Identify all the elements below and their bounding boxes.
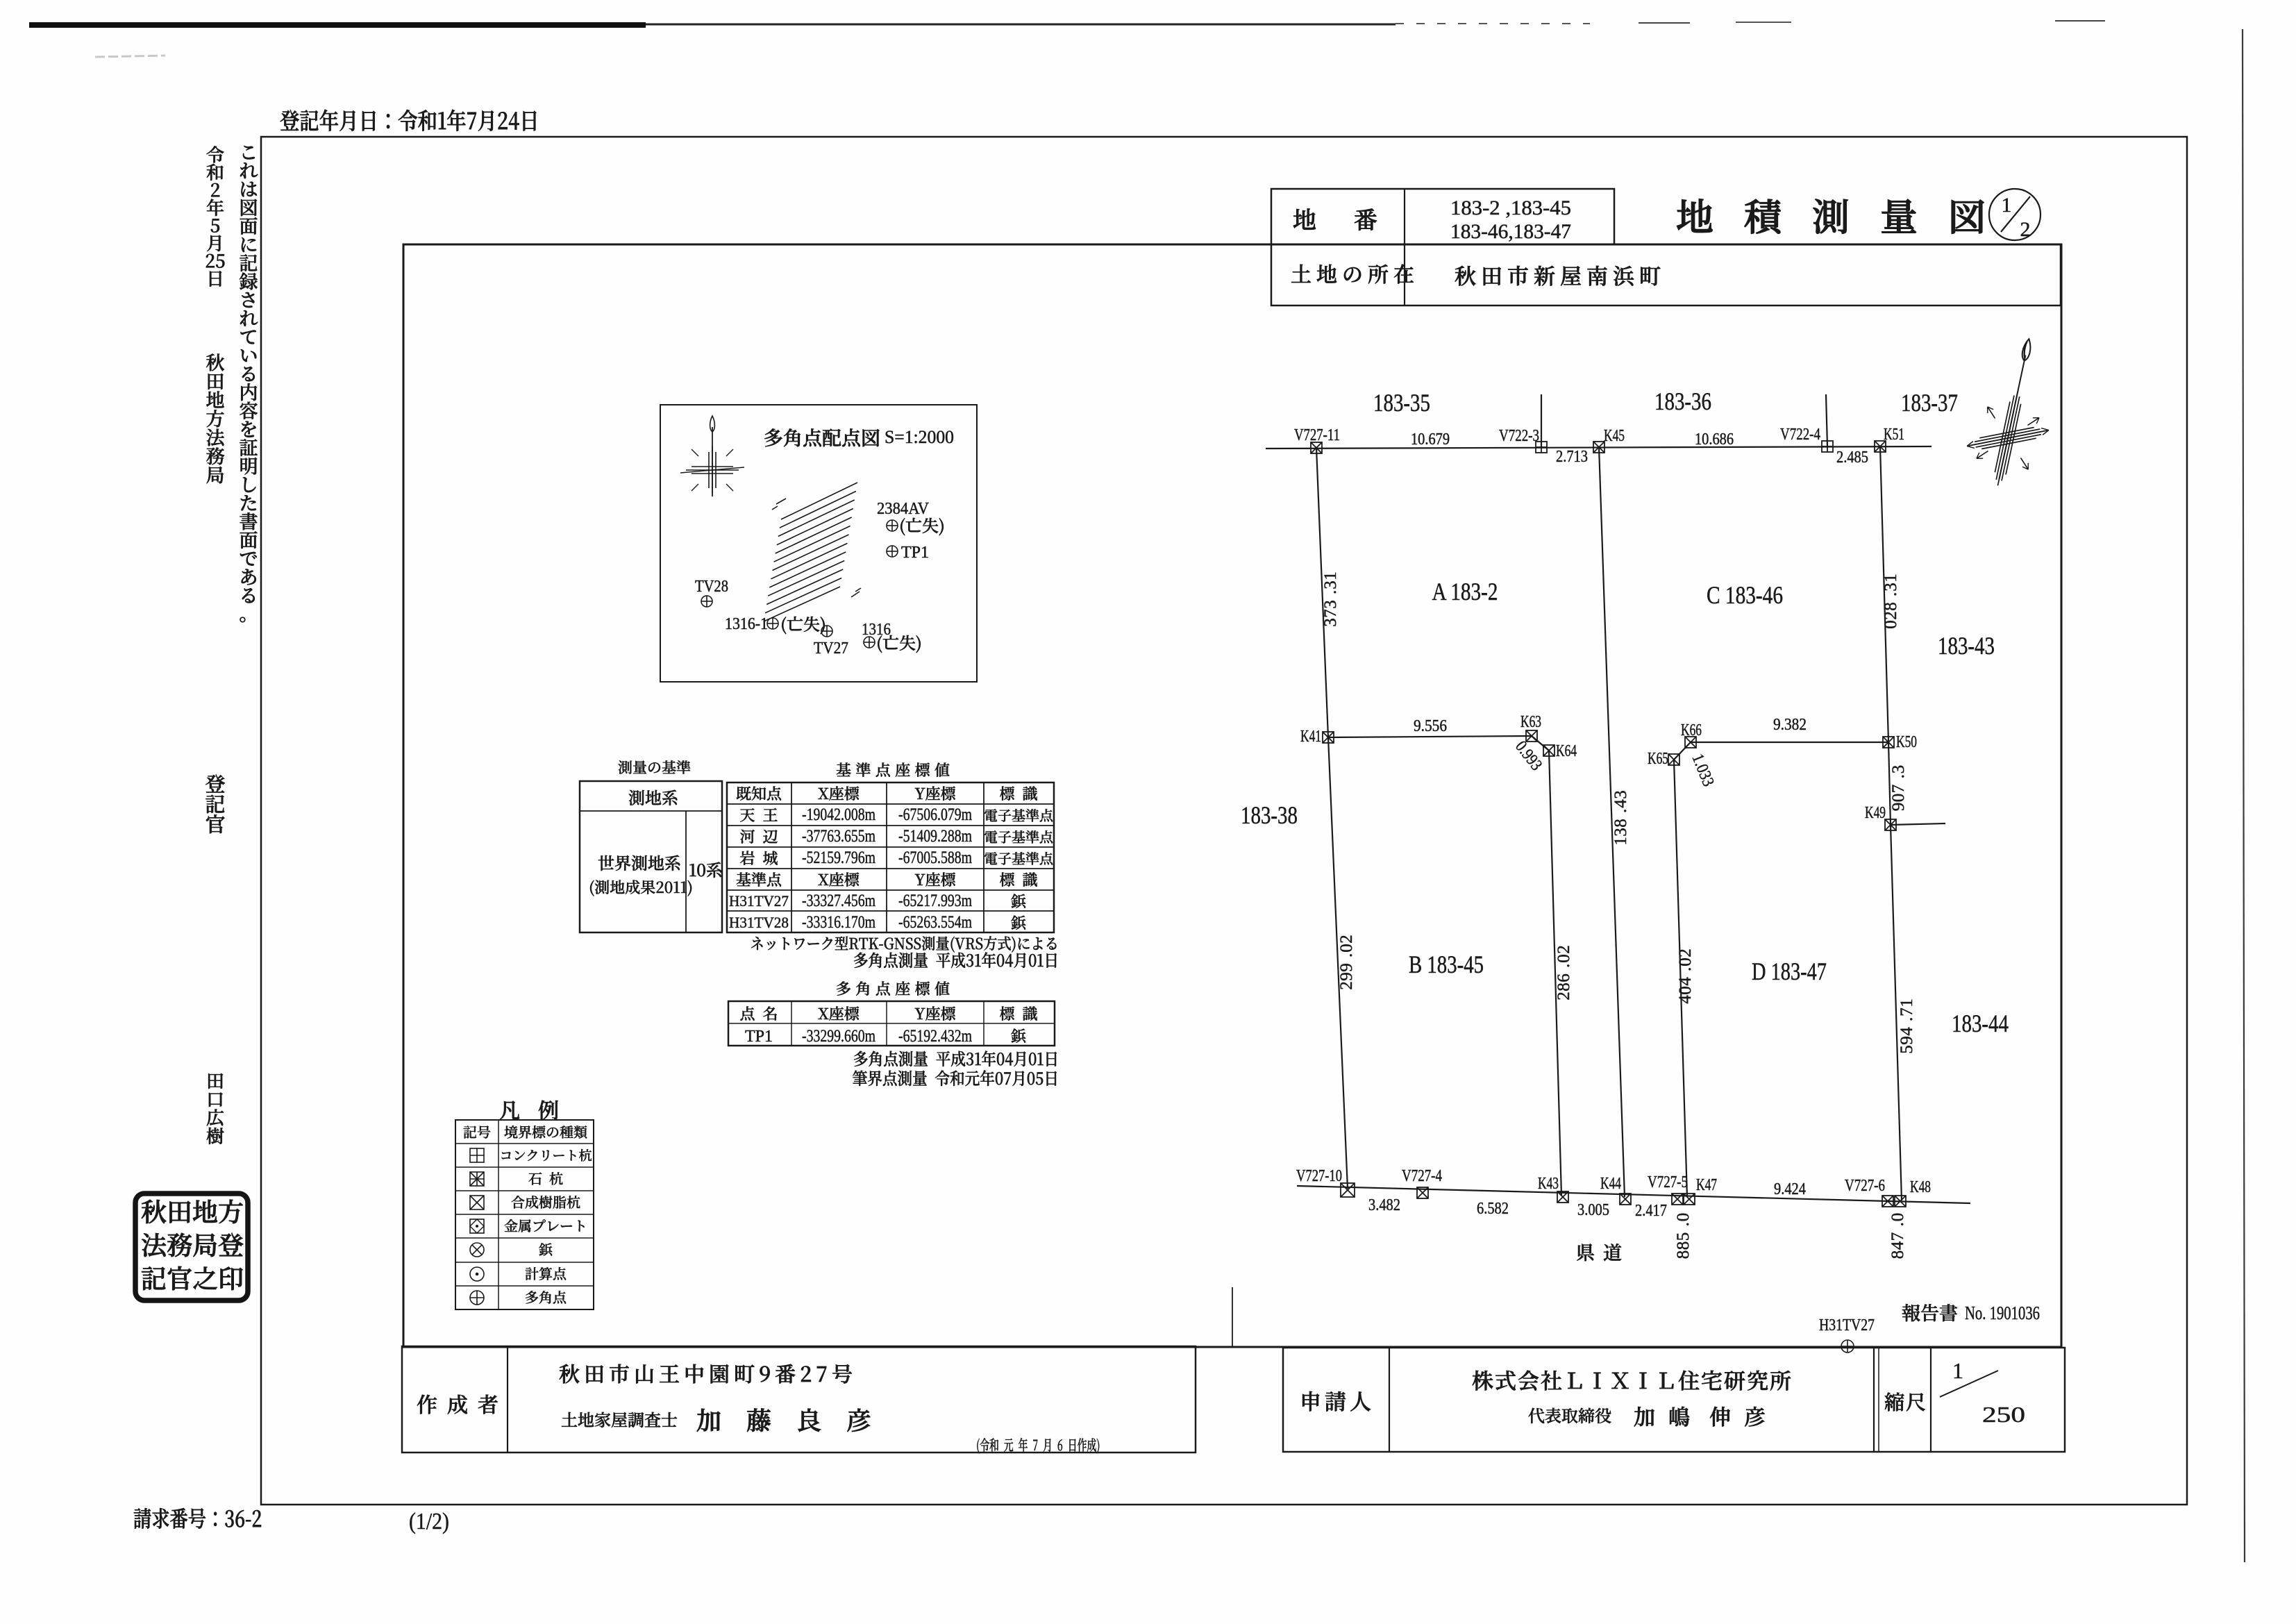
svg-text:2: 2 [2020,218,2031,241]
svg-text:-67506.079m: -67506.079m [898,805,972,824]
svg-text:10.679: 10.679 [1411,430,1450,449]
svg-text:K63: K63 [1520,713,1541,731]
svg-text:C 183-46: C 183-46 [1707,581,1783,609]
svg-text:-65217.993m: -65217.993m [898,891,972,910]
svg-text:-67005.588m: -67005.588m [898,848,972,867]
svg-text:1: 1 [1897,998,1916,1007]
svg-text:3: 3 [1611,790,1630,799]
svg-text:7: 7 [1321,609,1340,618]
svg-text:.: . [1337,953,1356,957]
svg-text:.: . [1555,964,1573,968]
svg-text:2: 2 [1882,611,1900,620]
svg-text:9.424: 9.424 [1774,1180,1806,1198]
svg-text:-33316.170m: -33316.170m [802,913,875,932]
svg-text:K41: K41 [1300,728,1321,746]
svg-text:10.686: 10.686 [1695,430,1734,449]
svg-text:4: 4 [1676,995,1695,1004]
svg-text:K64: K64 [1556,742,1577,760]
svg-text:8: 8 [1555,982,1573,991]
svg-text:V722-4: V722-4 [1780,426,1820,444]
svg-text:K45: K45 [1604,427,1625,445]
svg-text:183-37: 183-37 [1901,389,1958,417]
svg-text:8: 8 [1882,602,1900,611]
svg-text:K49: K49 [1865,804,1886,822]
svg-text:4: 4 [1611,799,1630,808]
svg-text:3: 3 [1889,765,1908,774]
svg-text:K50: K50 [1896,733,1917,751]
svg-text:4: 4 [1897,1027,1916,1036]
svg-text:H31TV27: H31TV27 [729,892,789,910]
svg-text:2: 2 [1555,991,1573,1001]
svg-text:3: 3 [1321,580,1340,589]
svg-text:K43: K43 [1538,1175,1559,1193]
svg-text:0: 0 [1882,620,1900,629]
svg-text:4: 4 [1676,977,1695,986]
svg-text:TV28: TV28 [695,578,728,596]
svg-text:9.556: 9.556 [1414,717,1447,735]
svg-text:0: 0 [1676,957,1695,966]
svg-text:183-2 ,183-45: 183-2 ,183-45 [1450,196,1571,219]
svg-text:S=1:2000: S=1:2000 [885,427,954,447]
svg-text:8: 8 [1674,1250,1693,1259]
svg-text:0: 0 [1555,954,1573,963]
svg-text:0: 0 [1674,1213,1693,1222]
svg-text:-33327.456m: -33327.456m [802,891,875,910]
svg-text:K51: K51 [1884,426,1904,444]
svg-text:250: 250 [1982,1402,2025,1427]
svg-text:3: 3 [1321,618,1340,627]
svg-text:-65263.554m: -65263.554m [898,913,972,932]
svg-text:5: 5 [1674,1232,1693,1241]
svg-text:183-38: 183-38 [1241,801,1298,829]
svg-text:1: 1 [1321,571,1340,580]
svg-text:.: . [1674,1222,1693,1226]
svg-text:K44: K44 [1600,1175,1621,1193]
svg-text:3.482: 3.482 [1368,1196,1400,1214]
svg-text:V727-11: V727-11 [1294,426,1340,444]
svg-text:V727-6: V727-6 [1845,1177,1885,1195]
svg-text:1: 1 [1882,574,1900,583]
svg-text:.: . [1889,774,1908,778]
svg-text:183-43: 183-43 [1938,632,1995,660]
svg-text:2.713: 2.713 [1556,448,1588,466]
svg-text:0: 0 [1676,986,1695,995]
svg-text:183-35: 183-35 [1373,389,1430,417]
svg-text:2: 2 [1676,948,1695,957]
svg-text:TP1: TP1 [745,1028,773,1046]
svg-text:.: . [1676,967,1695,971]
svg-text:TV27: TV27 [814,639,848,658]
svg-text:-65192.432m: -65192.432m [898,1027,972,1046]
svg-text:2: 2 [1555,945,1573,954]
svg-text:2.485: 2.485 [1836,449,1868,467]
svg-text:1316: 1316 [862,621,891,639]
svg-text:1: 1 [1611,837,1630,846]
svg-text:2: 2 [1337,935,1356,944]
svg-text:3: 3 [1611,828,1630,837]
svg-text:D 183-47: D 183-47 [1752,957,1827,985]
svg-text:H31TV27: H31TV27 [1819,1316,1875,1334]
svg-text:V727-4: V727-4 [1402,1167,1442,1185]
svg-text:6: 6 [1555,973,1573,982]
svg-text:V727-10: V727-10 [1296,1167,1342,1185]
svg-text:K65: K65 [1648,750,1668,768]
svg-text:4: 4 [1888,1241,1907,1250]
svg-text:TP1: TP1 [901,544,929,562]
svg-text:6.582: 6.582 [1477,1200,1509,1218]
svg-text:3: 3 [1882,583,1900,592]
svg-text:2.417: 2.417 [1635,1202,1667,1220]
svg-text:K66: K66 [1681,721,1702,739]
svg-text:.: . [1888,1222,1907,1226]
svg-text:7: 7 [1888,1232,1907,1241]
svg-text:2384AV: 2384AV [877,500,930,518]
svg-text:1316-1: 1316-1 [725,615,768,633]
svg-text:9.382: 9.382 [1773,716,1807,734]
svg-text:V722-3: V722-3 [1499,427,1539,445]
svg-text:A 183-2: A 183-2 [1432,578,1498,605]
svg-text:.: . [1882,592,1900,596]
svg-text:1: 1 [1952,1358,1963,1383]
svg-text:9: 9 [1337,972,1356,981]
svg-text:5: 5 [1897,1045,1916,1054]
svg-text:2: 2 [1337,981,1356,990]
svg-text:.: . [1321,590,1340,594]
svg-text:9: 9 [1337,963,1356,972]
svg-text:K47: K47 [1696,1176,1717,1194]
svg-text:0: 0 [1888,1213,1907,1222]
svg-text:0: 0 [1337,944,1356,953]
svg-text:9: 9 [1889,803,1908,812]
svg-text:7: 7 [1897,1007,1916,1016]
svg-text:-51409.288m: -51409.288m [898,827,972,846]
svg-text:1: 1 [2002,194,2012,217]
svg-text:(1/2): (1/2) [409,1509,449,1534]
svg-text:B 183-45: B 183-45 [1409,951,1484,978]
svg-text:.: . [1611,809,1630,813]
svg-text:183-46,183-47: 183-46,183-47 [1450,220,1571,243]
svg-text:0: 0 [1889,794,1908,803]
svg-text:No. 1901036: No. 1901036 [1965,1303,2040,1323]
svg-text:8: 8 [1674,1241,1693,1250]
svg-text:183-36: 183-36 [1654,387,1711,415]
svg-text:K48: K48 [1910,1178,1931,1196]
svg-text:-52159.796m: -52159.796m [802,848,875,867]
svg-text:3: 3 [1321,600,1340,609]
svg-text:7: 7 [1889,785,1908,794]
svg-text:183-44: 183-44 [1952,1010,2009,1037]
svg-text:V727-5: V727-5 [1648,1173,1688,1191]
svg-text:9: 9 [1897,1036,1916,1045]
svg-text:8: 8 [1888,1250,1907,1259]
svg-text:-33299.660m: -33299.660m [802,1027,875,1046]
svg-text:8: 8 [1611,819,1630,828]
svg-text:-37763.655m: -37763.655m [802,827,875,846]
svg-text:.: . [1897,1017,1916,1021]
svg-text:-19042.008m: -19042.008m [802,805,875,824]
svg-text:H31TV28: H31TV28 [729,914,789,931]
svg-text:3.005: 3.005 [1577,1201,1609,1219]
